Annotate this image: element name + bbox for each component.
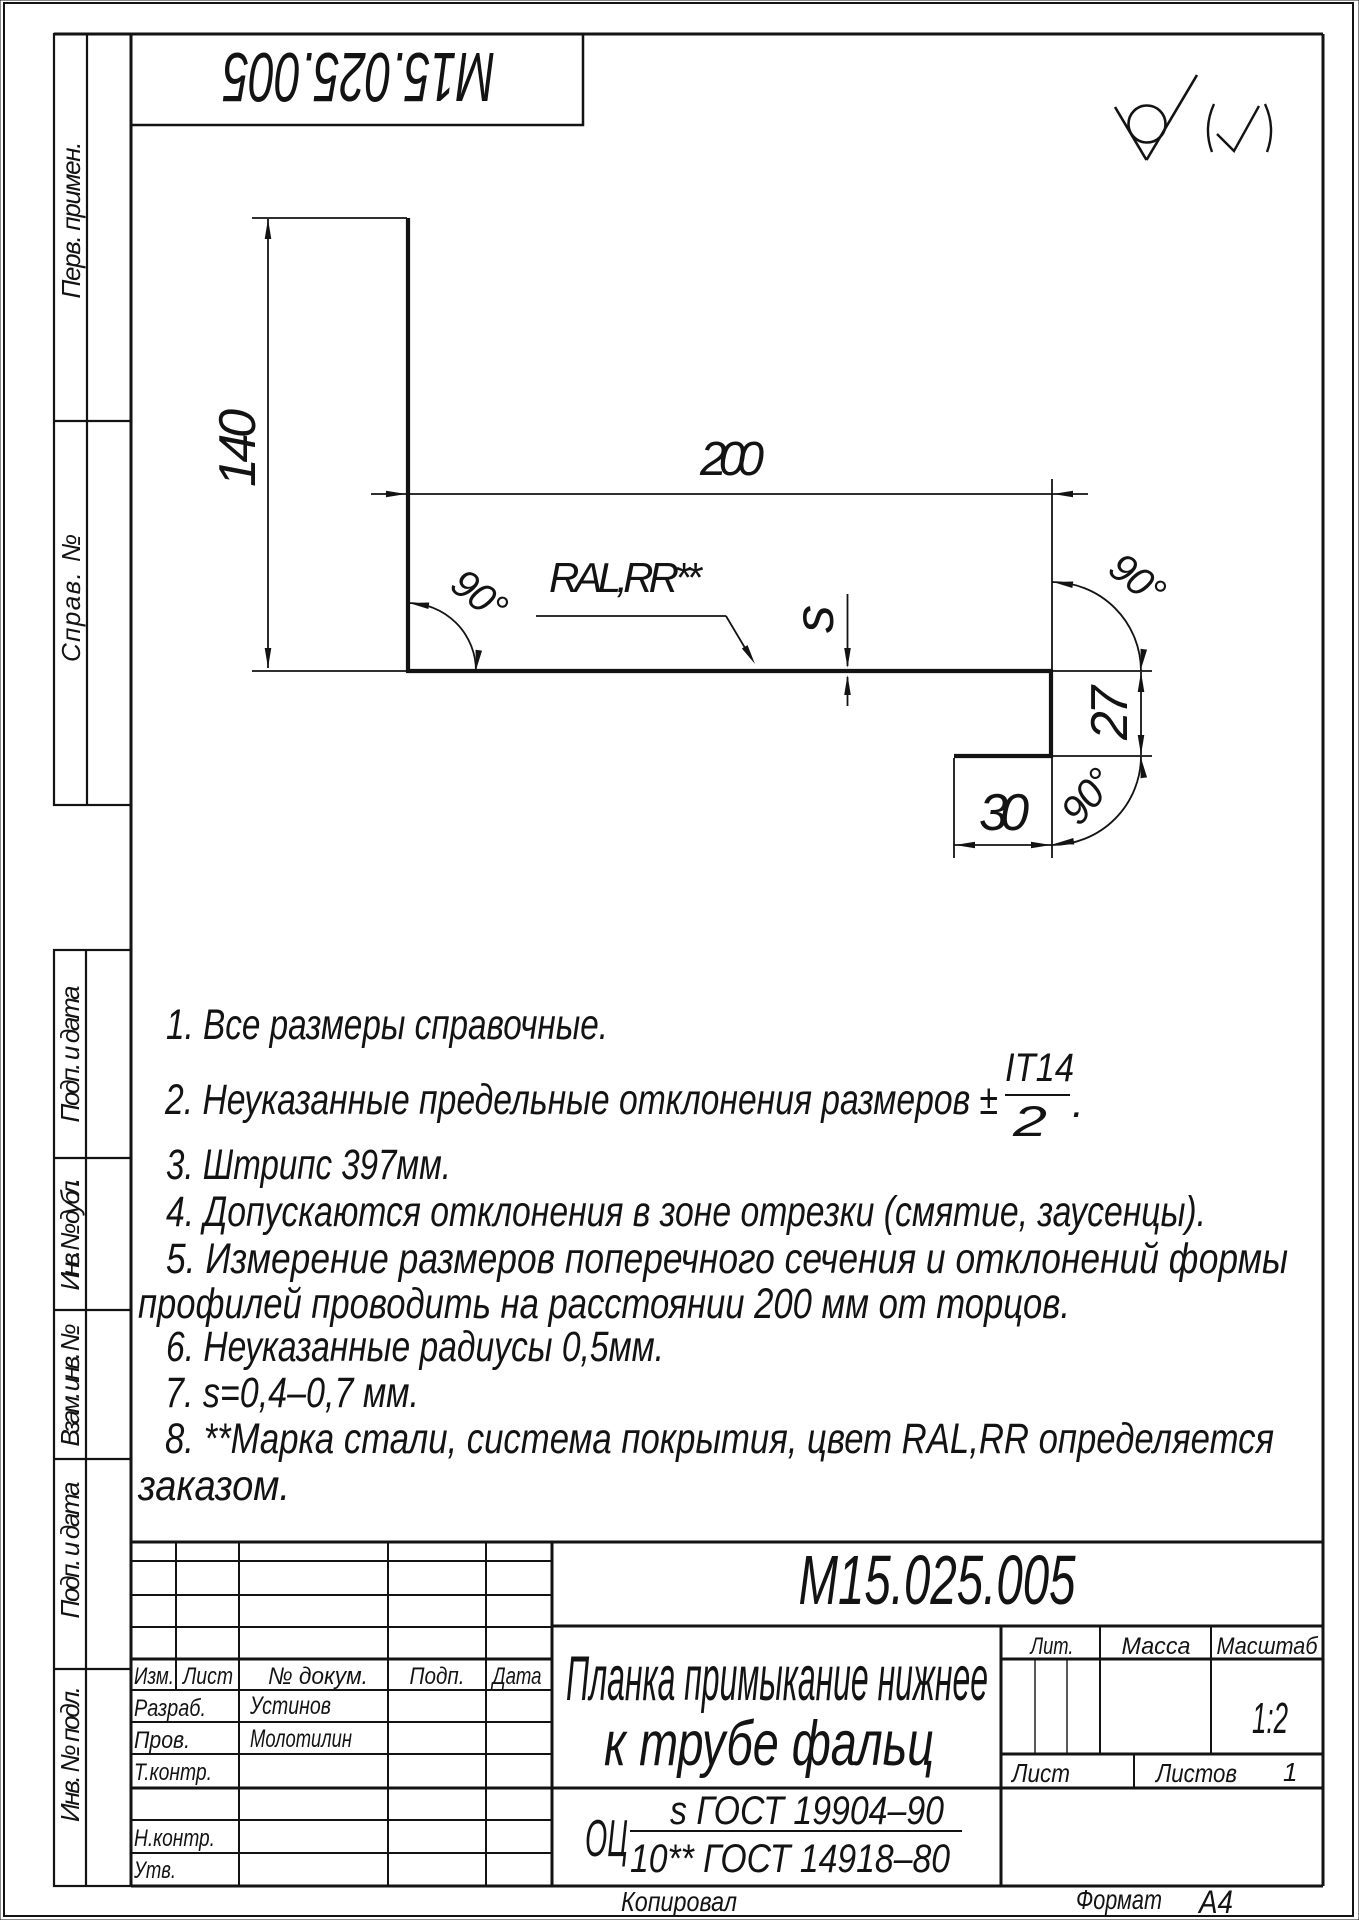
svg-text:М15.025.005: М15.025.005 xyxy=(799,1541,1077,1619)
svg-text:30: 30 xyxy=(979,784,1029,842)
svg-text:Планка примыкание нижнее: Планка примыкание нижнее xyxy=(566,1644,988,1714)
svg-text:s: s xyxy=(782,605,845,633)
svg-text:Н.контр.: Н.контр. xyxy=(134,1825,215,1852)
svg-text:Устинов: Устинов xyxy=(249,1692,331,1720)
svg-text:6. Неуказанные радиусы 0,5мм.: 6. Неуказанные радиусы 0,5мм. xyxy=(166,1323,664,1371)
svg-text:8. **Марка стали, система пок: 8. **Марка стали, система покрытия, цвет… xyxy=(165,1415,1274,1463)
svg-text:Лит.: Лит. xyxy=(1029,1633,1074,1660)
svg-text:Инв. № подл.: Инв. № подл. xyxy=(55,1686,85,1822)
svg-text:Пров.: Пров. xyxy=(134,1727,190,1754)
svg-text:1: 1 xyxy=(1283,1757,1297,1787)
svg-text:Масштаб: Масштаб xyxy=(1217,1633,1319,1660)
svg-text:профилей проводить на расстоян: профилей проводить на расстоянии 200 мм … xyxy=(138,1280,1070,1328)
svg-text:Лист: Лист xyxy=(181,1663,233,1690)
svg-text:1:2: 1:2 xyxy=(1252,1694,1288,1743)
svg-text:Утв.: Утв. xyxy=(133,1857,176,1884)
svg-text:s ГОСТ 19904–90: s ГОСТ 19904–90 xyxy=(670,1789,944,1833)
svg-text:3. Штрипс 397мм.: 3. Штрипс 397мм. xyxy=(166,1141,451,1189)
svg-text:Масса: Масса xyxy=(1122,1633,1191,1660)
svg-text:Перв. примен.: Перв. примен. xyxy=(56,142,86,299)
svg-text:7. s=0,4–0,7 мм.: 7. s=0,4–0,7 мм. xyxy=(165,1369,419,1417)
svg-text:Справ. №: Справ. № xyxy=(56,534,86,662)
svg-text:А4: А4 xyxy=(1197,1884,1233,1920)
svg-text:200: 200 xyxy=(699,433,764,486)
svg-text:1. Все размеры справочные.: 1. Все размеры справочные. xyxy=(166,1001,608,1049)
svg-text:140: 140 xyxy=(209,409,267,487)
svg-text:Молотилин: Молотилин xyxy=(250,1725,352,1753)
svg-text:Лист: Лист xyxy=(1010,1758,1070,1788)
svg-text:Подп. и дата: Подп. и дата xyxy=(55,986,85,1123)
svg-text:Формат: Формат xyxy=(1076,1884,1162,1915)
svg-text:27: 27 xyxy=(1081,684,1139,741)
svg-text:IT14: IT14 xyxy=(1005,1046,1074,1090)
svg-text:4. Допускаются отклонения в з: 4. Допускаются отклонения в зоне отрезки… xyxy=(166,1188,1206,1236)
svg-text:Изм.: Изм. xyxy=(134,1663,174,1690)
svg-text:5. Измерение размеров попереч: 5. Измерение размеров поперечного сечени… xyxy=(166,1235,1288,1283)
svg-text:Т.контр.: Т.контр. xyxy=(134,1759,212,1786)
svg-text:Листов: Листов xyxy=(1154,1758,1237,1788)
svg-text:ОЦ: ОЦ xyxy=(585,1810,628,1868)
svg-text:№ докум.: № докум. xyxy=(268,1663,368,1690)
svg-text:М15.025.005: М15.025.005 xyxy=(222,38,495,116)
svg-text:Подп.: Подп. xyxy=(410,1663,465,1690)
svg-text:Взам. инв. №: Взам. инв. № xyxy=(55,1324,85,1447)
svg-text:10** ГОСТ 14918–80: 10** ГОСТ 14918–80 xyxy=(630,1837,950,1881)
svg-text:RAL,RR**: RAL,RR** xyxy=(549,554,704,601)
svg-text:к трубе фальц: к трубе фальц xyxy=(604,1709,934,1779)
svg-text:2. Неуказанные предельные отк: 2. Неуказанные предельные отклонения раз… xyxy=(164,1076,998,1124)
svg-text:Подп. и дата: Подп. и дата xyxy=(55,1482,85,1619)
svg-text:заказом.: заказом. xyxy=(137,1462,290,1510)
svg-text:Дата: Дата xyxy=(490,1663,541,1690)
svg-text:.: . xyxy=(1072,1079,1084,1127)
svg-text:Инв. № дубл.: Инв. № дубл. xyxy=(55,1178,85,1291)
svg-text:2: 2 xyxy=(1012,1098,1048,1146)
svg-text:Копировал: Копировал xyxy=(621,1886,737,1917)
svg-text:Разраб.: Разраб. xyxy=(134,1695,206,1722)
